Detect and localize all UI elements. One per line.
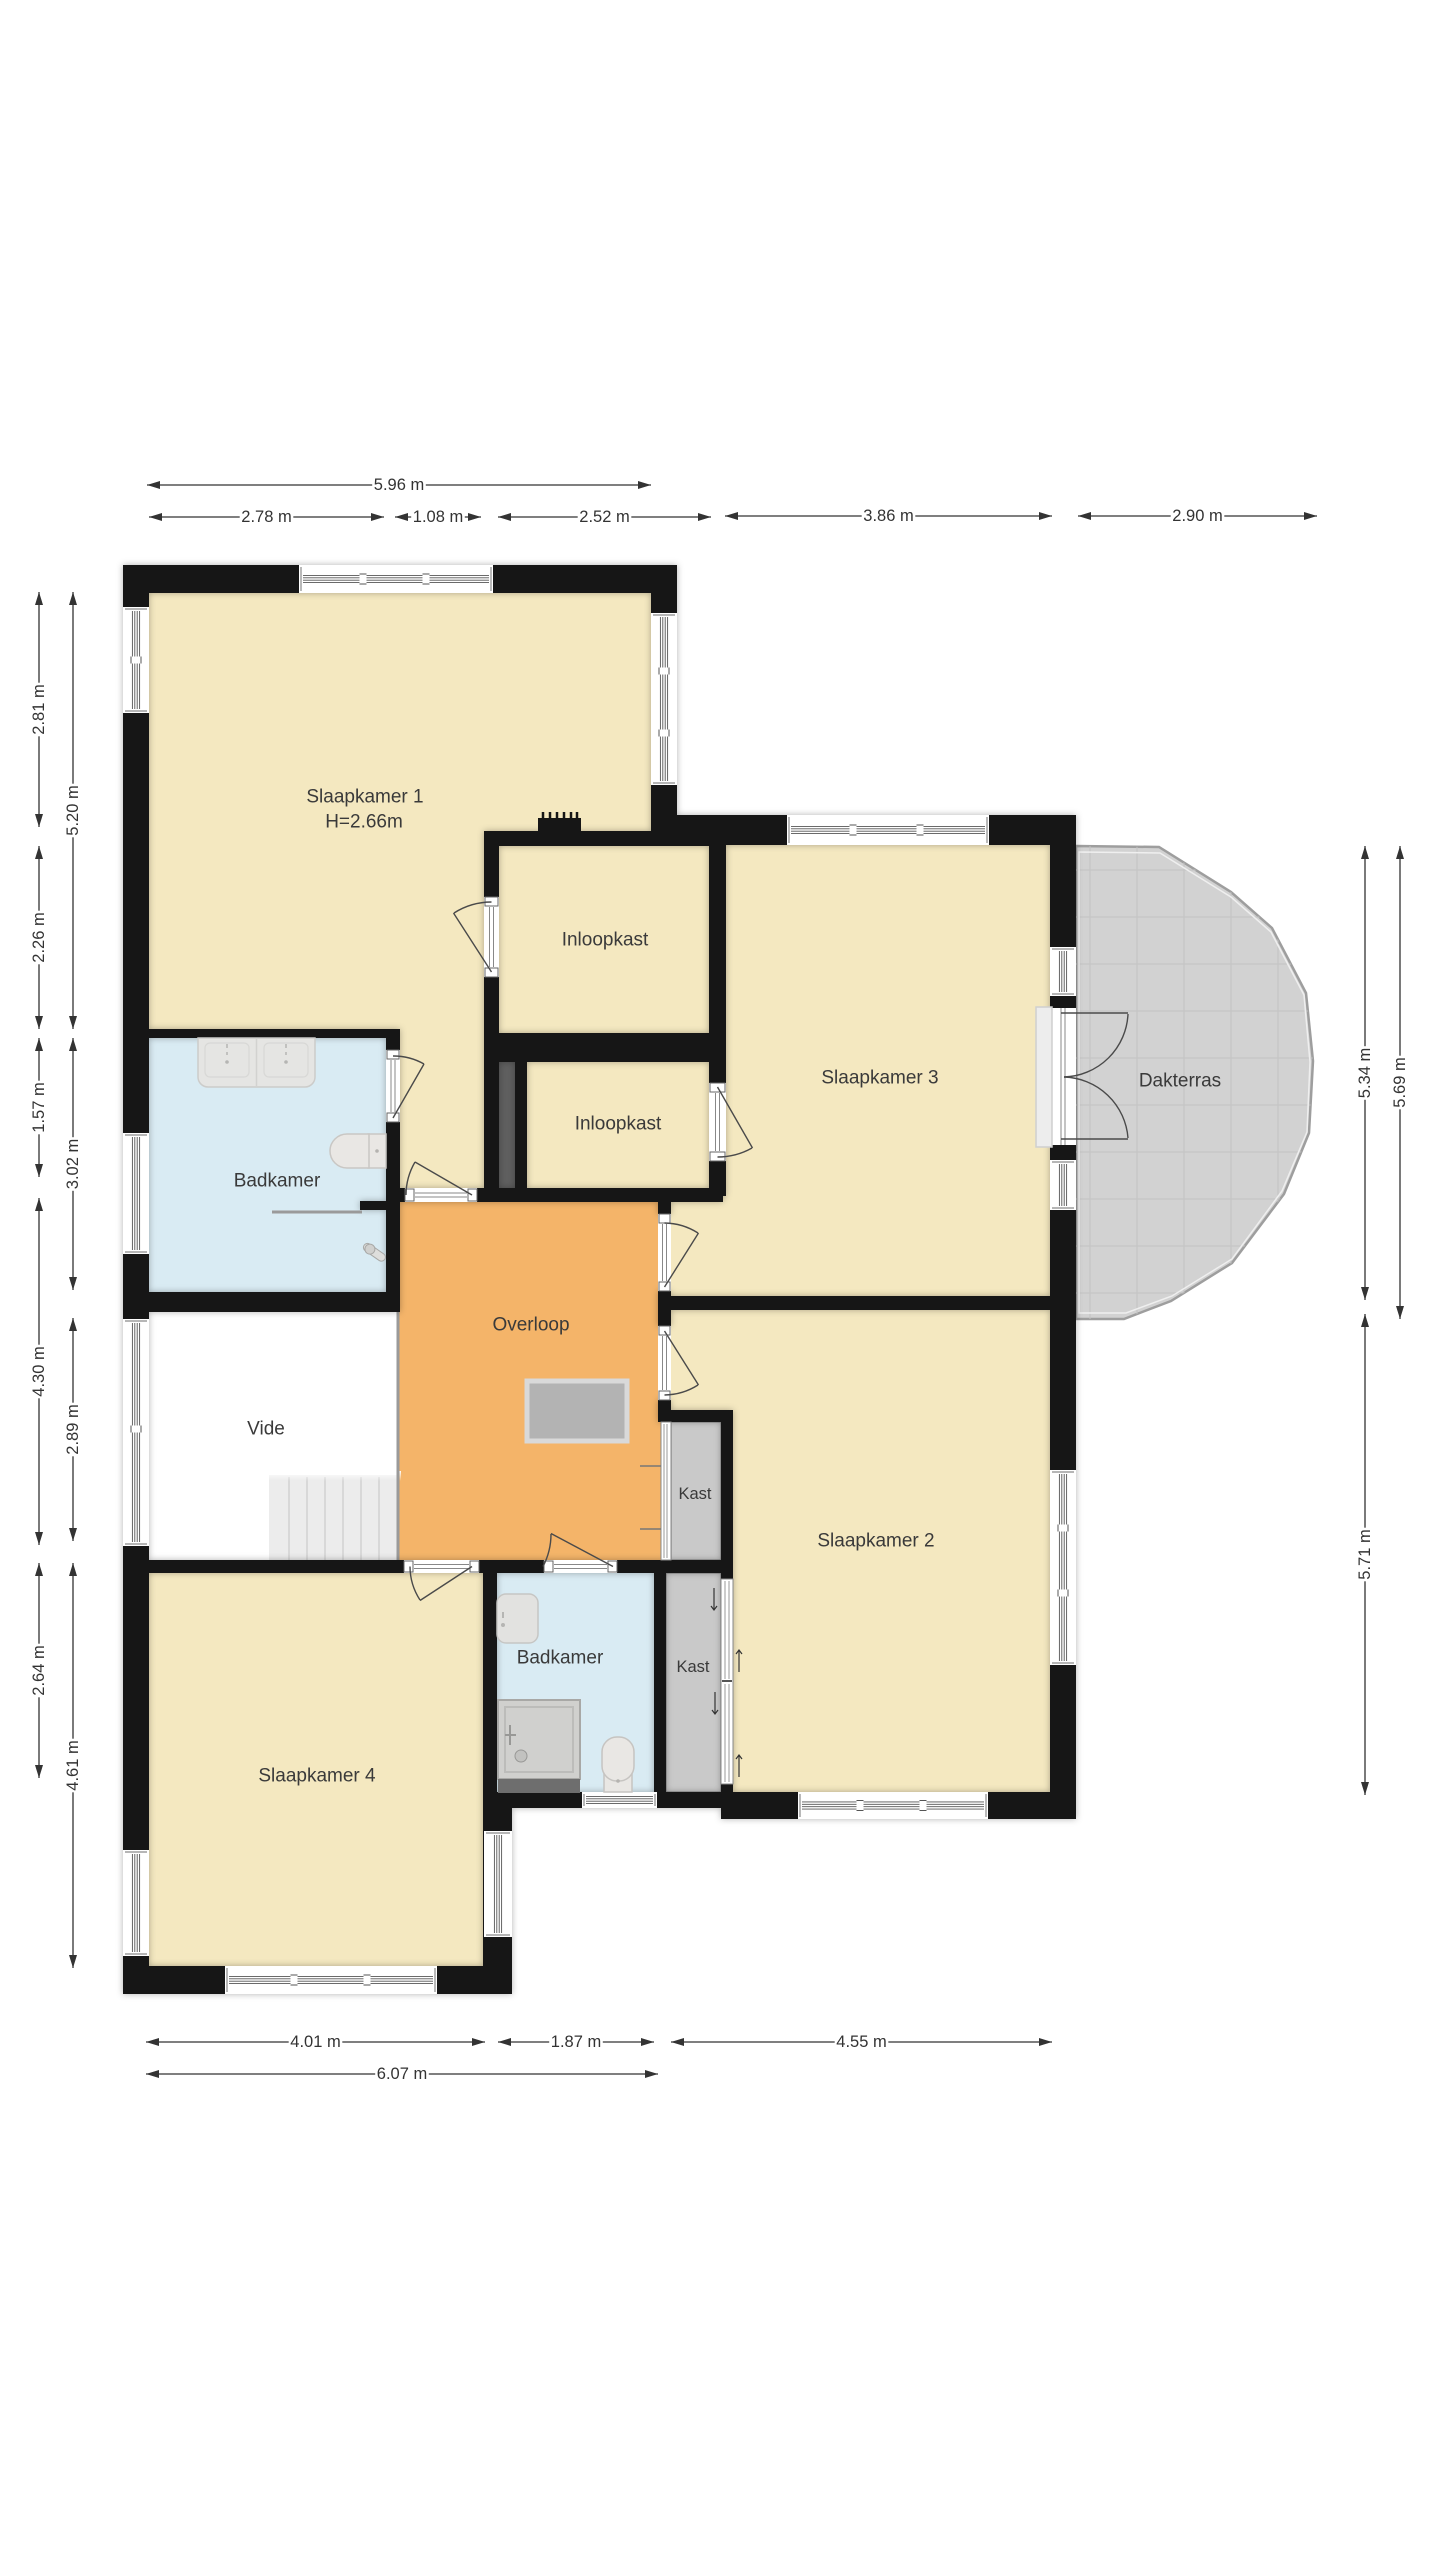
svg-text:Slaapkamer 1: Slaapkamer 1 [306, 787, 423, 808]
svg-text:Dakterras: Dakterras [1139, 1071, 1221, 1092]
svg-text:1.87 m: 1.87 m [551, 2033, 601, 2051]
svg-text:H=2.66m: H=2.66m [325, 812, 403, 833]
svg-text:2.78 m: 2.78 m [241, 508, 291, 526]
svg-text:5.71 m: 5.71 m [1356, 1529, 1374, 1579]
svg-text:4.30 m: 4.30 m [30, 1346, 48, 1396]
svg-text:2.81 m: 2.81 m [30, 684, 48, 734]
svg-text:2.90 m: 2.90 m [1172, 507, 1222, 525]
svg-text:5.20 m: 5.20 m [64, 785, 82, 835]
svg-text:3.86 m: 3.86 m [863, 507, 913, 525]
svg-text:6.07 m: 6.07 m [377, 2065, 427, 2083]
svg-text:2.26 m: 2.26 m [30, 912, 48, 962]
svg-text:2.52 m: 2.52 m [579, 508, 629, 526]
svg-text:5.69 m: 5.69 m [1391, 1057, 1409, 1107]
svg-text:Kast: Kast [678, 1485, 711, 1503]
svg-text:3.02 m: 3.02 m [64, 1139, 82, 1189]
svg-text:1.08 m: 1.08 m [413, 508, 463, 526]
svg-text:Badkamer: Badkamer [234, 1171, 321, 1192]
svg-text:5.34 m: 5.34 m [1356, 1048, 1374, 1098]
svg-text:Slaapkamer 4: Slaapkamer 4 [258, 1766, 376, 1787]
svg-text:Inloopkast: Inloopkast [575, 1114, 662, 1135]
svg-text:Vide: Vide [247, 1419, 285, 1440]
svg-text:Kast: Kast [676, 1658, 709, 1676]
svg-text:4.01 m: 4.01 m [290, 2033, 340, 2051]
svg-text:Slaapkamer 2: Slaapkamer 2 [817, 1531, 934, 1552]
svg-text:4.55 m: 4.55 m [836, 2033, 886, 2051]
svg-text:Inloopkast: Inloopkast [562, 930, 649, 951]
svg-text:1.57 m: 1.57 m [30, 1082, 48, 1132]
svg-text:2.89 m: 2.89 m [64, 1404, 82, 1454]
svg-text:Overloop: Overloop [492, 1315, 569, 1336]
svg-text:5.96 m: 5.96 m [374, 476, 424, 494]
svg-text:Slaapkamer 3: Slaapkamer 3 [821, 1068, 938, 1089]
svg-text:4.61 m: 4.61 m [64, 1740, 82, 1790]
svg-text:2.64 m: 2.64 m [30, 1645, 48, 1695]
svg-text:Badkamer: Badkamer [517, 1648, 604, 1669]
